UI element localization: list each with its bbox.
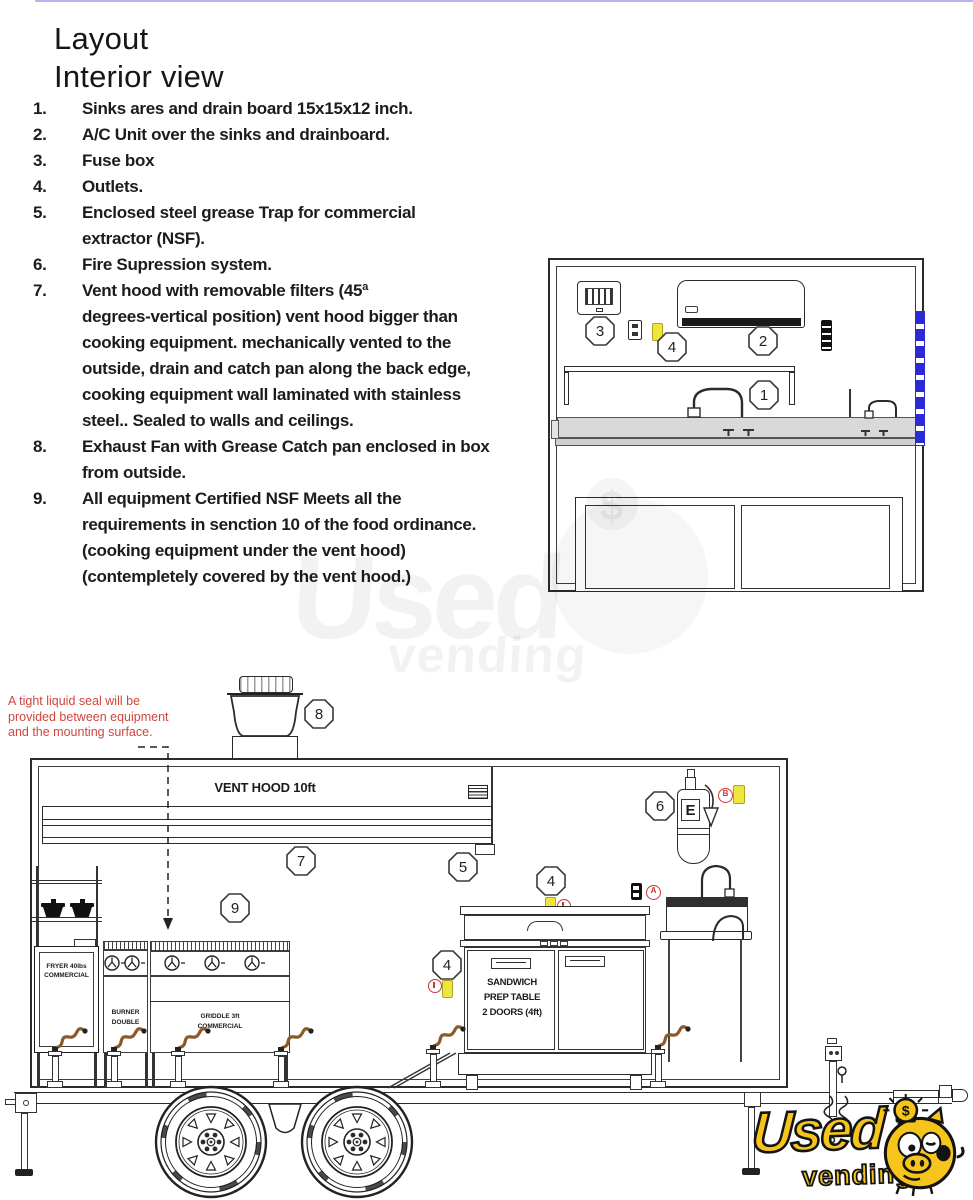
exhaust-fan-body xyxy=(231,696,299,736)
sink-leg xyxy=(740,940,742,1062)
ac-unit-icon xyxy=(677,280,805,328)
title-line-1: Layout xyxy=(54,20,224,58)
blue-door-strip xyxy=(915,311,925,446)
stand-leg xyxy=(152,1053,155,1088)
callout-3: 3 xyxy=(585,316,615,346)
leveling-foot-shaft xyxy=(52,1056,59,1082)
yellow-tag-icon xyxy=(733,785,745,804)
yellow-tag-icon xyxy=(442,980,453,998)
jack-head xyxy=(825,1046,842,1061)
fuse-box-icon xyxy=(577,281,621,315)
circuit-badge-a: A xyxy=(646,885,661,900)
extinguisher-label: E xyxy=(681,799,700,821)
exhaust-fan-cap xyxy=(239,676,293,693)
title-line-2: Interior view xyxy=(54,58,224,96)
interior-shelf-leg xyxy=(789,372,795,405)
ac-vent-band xyxy=(682,318,801,326)
outlet-icon-black xyxy=(631,883,642,900)
top-edge-line xyxy=(35,0,973,2)
door-handle xyxy=(565,956,605,967)
svg-text:5: 5 xyxy=(459,859,467,876)
callout-4: 4 xyxy=(432,950,462,980)
list-item: 8.Exhaust Fan with Grease Catch pan encl… xyxy=(0,434,500,486)
counter-pipe xyxy=(849,389,851,417)
svg-text:2: 2 xyxy=(759,333,767,350)
stand-leg xyxy=(37,1053,40,1088)
logo-coin-symbol: $ xyxy=(902,1103,910,1119)
fuse-box-notch xyxy=(596,308,603,312)
fryer-tab xyxy=(74,939,96,947)
prep-table-base xyxy=(458,1053,652,1075)
callout-6: 6 xyxy=(645,791,675,821)
griddle-label: GRIDDLE 3ft COMMERCIAL xyxy=(180,1012,260,1032)
prep-table-slot xyxy=(550,941,558,946)
over-shelf xyxy=(32,880,102,884)
handle-line xyxy=(570,960,600,961)
sink-leg xyxy=(668,940,670,1062)
cabinet-door xyxy=(741,505,890,589)
callout-5: 5 xyxy=(448,852,478,882)
prep-table-lid-handle xyxy=(527,921,563,931)
svg-text:9: 9 xyxy=(231,900,239,917)
leveling-foot xyxy=(425,1081,441,1088)
callout-9: 9 xyxy=(220,893,250,923)
leveling-foot-shaft xyxy=(430,1054,437,1082)
leveling-foot-shaft xyxy=(111,1056,118,1082)
page-title: Layout Interior view xyxy=(54,20,224,96)
hand-sink-top xyxy=(666,897,748,906)
shelf-post xyxy=(96,866,98,947)
fryer-label: FRYER 40lbs COMMERCIAL xyxy=(39,962,94,980)
callout-4: 4 xyxy=(536,866,566,896)
leveling-foot xyxy=(650,1081,666,1088)
pot-lid xyxy=(41,903,65,907)
fuse-box-panel xyxy=(585,288,613,305)
vent-hood-label: VENT HOOD 10ft xyxy=(175,780,355,795)
prep-table-leg xyxy=(466,1075,478,1090)
hood-louver-line xyxy=(43,825,491,826)
leveling-foot-shaft xyxy=(278,1056,285,1082)
leveling-foot-shaft xyxy=(175,1056,182,1082)
svg-text:4: 4 xyxy=(668,339,676,356)
vent-hood-body xyxy=(42,806,492,844)
hand-sink-basin xyxy=(666,906,748,933)
bolt xyxy=(835,1051,839,1055)
list-item: 7.Vent hood with removable filters (45ª … xyxy=(0,278,500,434)
circuit-badge-b: B xyxy=(718,788,733,803)
ac-button xyxy=(685,306,698,313)
outlet-slot xyxy=(632,332,638,336)
svg-text:4: 4 xyxy=(443,957,451,974)
logo-pig-icon: $ xyxy=(868,1094,972,1200)
outlet-icon xyxy=(628,320,642,340)
burner-knob-panel xyxy=(103,950,148,976)
logo-used-text: Used xyxy=(750,1096,885,1167)
svg-text:8: 8 xyxy=(315,706,323,723)
leveling-foot xyxy=(106,1081,122,1088)
svg-text:6: 6 xyxy=(656,798,664,815)
leveling-foot xyxy=(170,1081,186,1088)
outlet-slot xyxy=(632,324,638,328)
round-marker-icon xyxy=(428,979,442,993)
shelf-post xyxy=(36,866,38,947)
griddle-knob-panel xyxy=(150,951,290,976)
svg-text:4: 4 xyxy=(547,873,555,890)
callout-1: 1 xyxy=(749,380,779,410)
callout-8: 8 xyxy=(304,699,334,729)
list-item: 4.Outlets. xyxy=(0,174,500,200)
list-item: 1.Sinks ares and drain board 15x15x12 in… xyxy=(0,96,500,122)
leveling-foot xyxy=(47,1081,63,1088)
stand-leg xyxy=(145,1053,148,1088)
stabilizer-foot xyxy=(742,1168,760,1175)
interior-shelf-leg xyxy=(564,372,569,405)
hood-side-wall xyxy=(491,767,493,844)
leveling-foot xyxy=(273,1081,289,1088)
list-item: 9.All equipment Certified NSF Meets all … xyxy=(0,486,500,590)
callout-7: 7 xyxy=(286,846,316,876)
svg-text:3: 3 xyxy=(596,323,604,340)
equipment-list: 1.Sinks ares and drain board 15x15x12 in… xyxy=(0,96,500,590)
pot-icon xyxy=(69,899,95,918)
axle-equalizer xyxy=(269,1104,301,1133)
liquid-seal-note: A tight liquid seal will be provided bet… xyxy=(8,694,188,741)
door-handle xyxy=(491,958,531,969)
grease-catch-box xyxy=(475,844,495,855)
list-item: 5.Enclosed steel grease Trap for commerc… xyxy=(0,200,500,252)
hood-louver-line xyxy=(43,819,491,820)
svg-text:7: 7 xyxy=(297,853,305,870)
sink-counter-rim xyxy=(555,438,921,446)
pot-icon xyxy=(40,899,66,918)
griddle-top xyxy=(150,941,290,951)
outlet-slot xyxy=(633,893,639,897)
svg-text:1: 1 xyxy=(760,387,768,404)
stabilizer-pin xyxy=(5,1099,16,1105)
prep-table-slot xyxy=(540,941,548,946)
pot-lid xyxy=(70,903,94,907)
list-item: 3.Fuse box xyxy=(0,148,500,174)
stand-leg xyxy=(94,1053,97,1088)
bolt xyxy=(23,1100,29,1106)
list-item: 6.Fire Supression system. xyxy=(0,252,500,278)
jack-crank xyxy=(838,1067,846,1083)
stabilizer-post xyxy=(21,1113,28,1171)
list-item: 2.A/C Unit over the sinks and drainboard… xyxy=(0,122,500,148)
wall-switch-icon xyxy=(821,320,832,351)
handle-line xyxy=(496,962,526,963)
bolt xyxy=(829,1051,833,1055)
watermark-vending: vending xyxy=(386,626,589,684)
exhaust-fan-base xyxy=(232,736,298,759)
burner-label: BURNER DOUBLE xyxy=(103,1008,148,1028)
exhaust-fan-flange xyxy=(227,693,303,695)
griddle-shelf-line xyxy=(151,1001,289,1002)
burner-grate xyxy=(103,941,148,950)
document-page: Layout Interior view 1.Sinks ares and dr… xyxy=(0,0,973,1200)
prep-table-label: SANDWICH PREP TABLE 2 DOORS (4ft) xyxy=(470,975,554,1020)
vent-grille-icon xyxy=(468,785,488,799)
jack-handle xyxy=(827,1038,837,1044)
pot-shelf xyxy=(32,917,102,922)
sink-counter xyxy=(557,417,919,438)
tank-band xyxy=(678,828,709,835)
interior-shelf-top xyxy=(564,366,795,372)
callout-4: 4 xyxy=(657,332,687,362)
stabilizer-foot xyxy=(15,1169,33,1176)
callout-2: 2 xyxy=(748,326,778,356)
leveling-foot-shaft xyxy=(655,1054,662,1082)
hood-louver-line xyxy=(43,837,491,838)
outlet-slot xyxy=(633,886,639,890)
hand-sink-rim xyxy=(660,931,752,940)
stabilizer-bracket xyxy=(15,1093,37,1113)
counter-endcap xyxy=(551,420,559,439)
watermark-coin xyxy=(586,478,638,530)
prep-table-slot xyxy=(560,941,568,946)
prep-table-leg xyxy=(630,1075,642,1090)
prep-table-top xyxy=(460,906,650,915)
